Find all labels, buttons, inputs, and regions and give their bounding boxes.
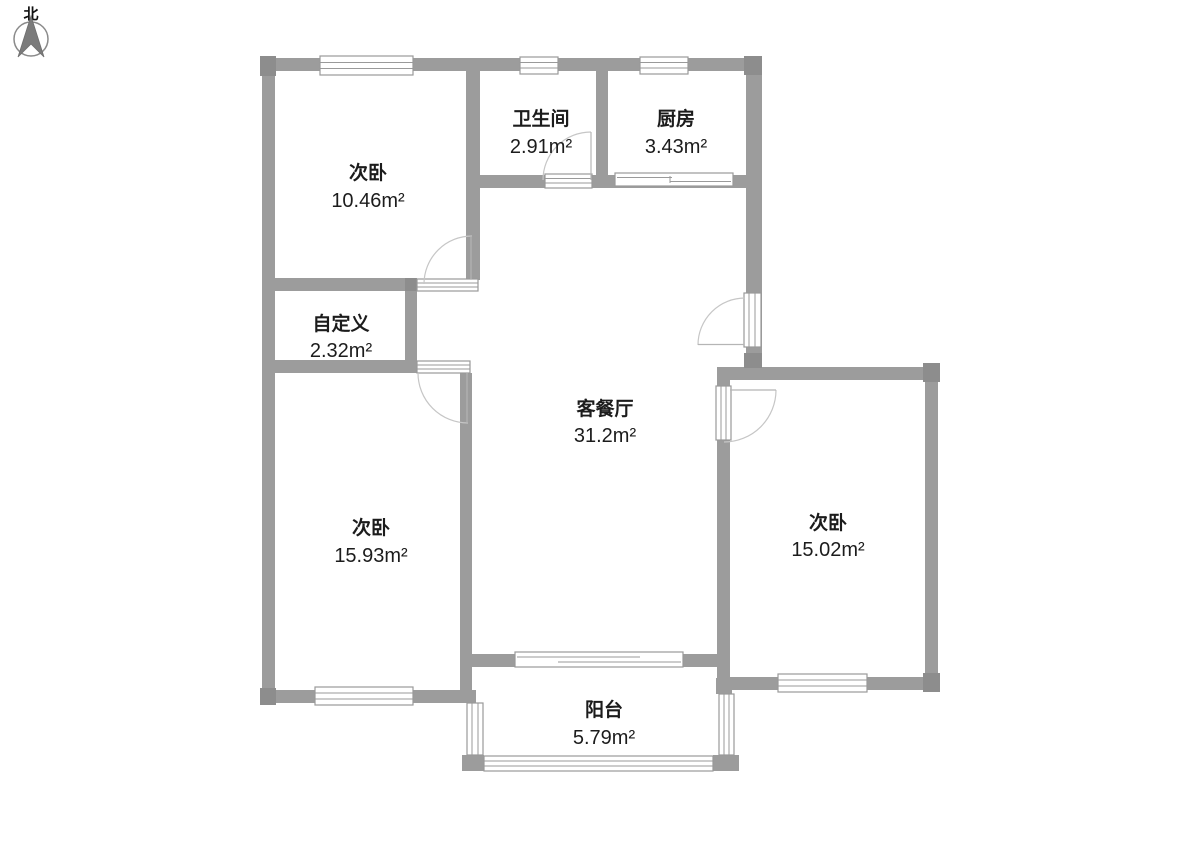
wall-custom-right	[405, 285, 417, 373]
wall-bedroom3-right	[925, 367, 938, 692]
window-bedroom3-bottom	[778, 674, 867, 692]
wall-left	[262, 58, 275, 703]
window-balcony-left	[467, 703, 483, 755]
wall-bath-kitchen-divider	[596, 70, 608, 177]
wall-cap-door-stub	[405, 278, 417, 291]
wall-cap-bottom-left	[260, 688, 276, 705]
wall-cap-bedroom3-topright	[923, 363, 940, 382]
room-area: 31.2m²	[574, 425, 637, 447]
room-label-custom: 自定义 2.32m²	[310, 312, 373, 362]
room-name: 自定义	[312, 312, 369, 335]
room-name: 客餐厅	[576, 397, 633, 420]
room-name: 卫生间	[512, 107, 569, 130]
wall-corridor	[466, 58, 480, 280]
room-label-bathroom: 卫生间 2.91m²	[510, 107, 573, 158]
wall-balcony-corner-left	[462, 755, 484, 771]
sliding-door-kitchen	[615, 173, 733, 186]
room-name: 厨房	[657, 107, 695, 130]
room-area: 2.91m²	[510, 136, 573, 158]
compass: 北	[14, 6, 48, 57]
floor-plan-canvas: 北	[0, 0, 1200, 860]
compass-north-arrow-icon	[18, 16, 44, 57]
wall-cap-top-left	[260, 56, 276, 76]
wall-balcony-corner-right	[713, 755, 739, 771]
room-label-bedroom-top-left: 次卧 10.46m²	[331, 161, 405, 212]
window-balcony-right	[719, 694, 734, 755]
wall-bedroom3-top	[717, 367, 938, 380]
room-name: 阳台	[585, 698, 623, 721]
room-label-kitchen: 厨房 3.43m²	[645, 107, 708, 158]
sliding-door-living-balcony	[515, 652, 683, 667]
window-kitchen-top	[640, 57, 688, 74]
room-label-balcony: 阳台 5.79m²	[573, 698, 636, 749]
room-area: 15.93m²	[334, 545, 408, 567]
wall-bedroom1-bottom	[262, 278, 417, 291]
window-balcony-bottom	[484, 756, 713, 771]
wall-cap-top-right	[744, 56, 762, 75]
door-bedroom3	[716, 386, 776, 442]
wall-cap-entry-junction	[744, 353, 762, 368]
room-area: 15.02m²	[791, 539, 865, 561]
room-label-living-dining: 客餐厅 31.2m²	[574, 397, 637, 447]
room-label-bedroom-right: 次卧 15.02m²	[791, 511, 865, 561]
room-label-bedroom-bottom-left: 次卧 15.93m²	[334, 516, 408, 567]
window-bathroom-top	[520, 57, 558, 74]
door-entry	[698, 293, 761, 347]
room-area: 3.43m²	[645, 136, 708, 158]
room-name: 次卧	[349, 161, 387, 184]
room-area: 5.79m²	[573, 727, 636, 749]
room-name: 次卧	[809, 511, 847, 534]
room-name: 次卧	[352, 516, 390, 539]
window-bedroom1-top	[320, 56, 413, 75]
wall-cap-bedroom3-bottomright	[923, 673, 940, 692]
window-bedroom2-bottom	[315, 687, 413, 705]
wall-balcony-corner-top	[716, 678, 732, 694]
floor-plan: 北	[0, 0, 1200, 860]
room-area: 10.46m²	[331, 190, 405, 212]
room-area: 2.32m²	[310, 340, 373, 362]
